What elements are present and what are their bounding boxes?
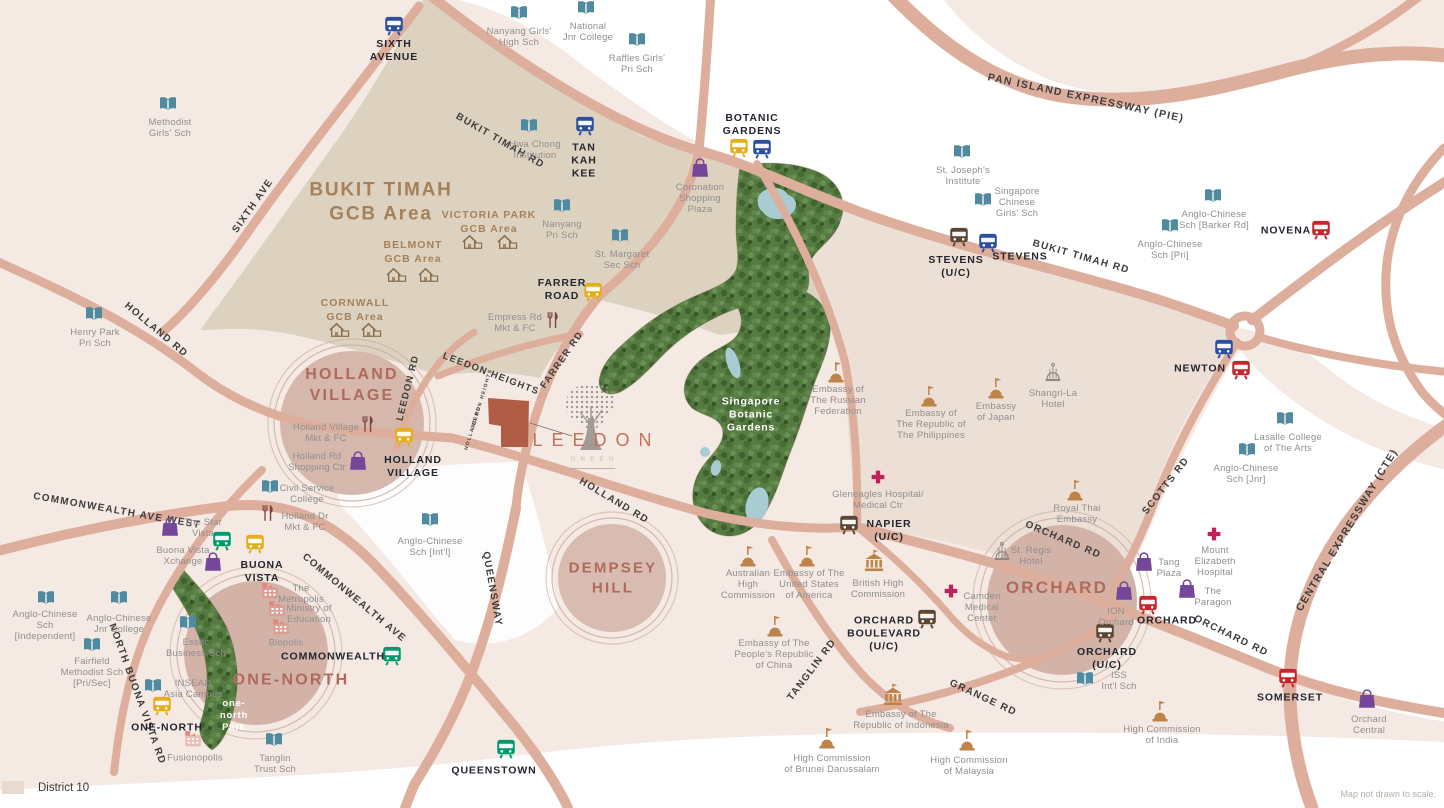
national-jnr-college-label: National Jnr College [563, 21, 613, 43]
tang-plaza-label: Tang Plaza [1157, 557, 1182, 579]
leedon-logo-sub: GREEN [523, 456, 660, 463]
ion-orchard-label: ION Orchard [1098, 606, 1134, 628]
civil-service-college-icon [260, 477, 280, 497]
henry-park-pri-sch-icon [84, 304, 104, 324]
leedon-logo: LEEDON GREEN [523, 430, 660, 469]
high-commission-of-malaysia-icon [955, 728, 979, 752]
anglo-chinese-jnr-college-icon [109, 588, 129, 608]
road-label-sixth-ave: SIXTH AVE [230, 177, 275, 235]
the-star-vista-label: The Star Vista [184, 517, 222, 539]
road-label-farrer-rd: FARRER RD [538, 329, 586, 390]
station-label-orchard: ORCHARD [1137, 614, 1197, 627]
high-commission-of-brunei-darussalam-icon [815, 726, 839, 750]
label-layer: BUKIT TIMAH RDBUKIT TIMAH RDPAN ISLAND E… [0, 0, 1444, 808]
station-label-sixth-avenue: SIXTH AVENUE [370, 38, 418, 64]
embassy-of-the-united-states-of-america-label: Embassy of The United States of America [773, 568, 844, 602]
fairfield-methodist-sch-pri-sec-icon [82, 635, 102, 655]
station-label-queenstown: QUEENSTOWN [451, 764, 536, 777]
british-high-commission-icon [862, 549, 886, 573]
embassy-of-the-russian-federation-icon [824, 360, 848, 384]
station-label-tan-kah-kee: TAN KAH KEE [571, 141, 596, 180]
shangri-la-hotel-label: Shangri-La Hotel [1029, 388, 1077, 410]
coronation-shopping-plaza-label: Coronation Shopping Plaza [676, 182, 724, 216]
station-icon-somerset-red [1278, 668, 1299, 689]
mount-elizabeth-hospital-label: Mount Elizabeth Hospital [1195, 545, 1236, 579]
biopolis-label: Biopolis [269, 637, 304, 648]
anglo-chinese-sch-pri-icon [1160, 216, 1180, 236]
leedon-logo-name: LEEDON [523, 430, 660, 451]
station-icon-stevens-u-c-brown [949, 227, 970, 248]
tanglin-trust-sch-icon [264, 730, 284, 750]
road-label-holland-rd: HOLLAND RD [577, 476, 650, 526]
gcb-area-label-victoria-park-gcb-area: VICTORIA PARK GCB Area [442, 208, 536, 236]
fairfield-methodist-sch-pri-sec-label: Fairfield Methodist Sch [Pri/Sec] [61, 656, 124, 690]
station-icon-holland-village-yellow [394, 427, 415, 448]
station-icon-tan-kah-kee-blue [575, 116, 596, 137]
raffles-girls-pri-sch-icon [627, 30, 647, 50]
biopolis-icon [270, 615, 292, 637]
leedon-logo-rule [569, 468, 615, 469]
st-margaret-sec-sch-label: St. Margaret Sec Sch [595, 249, 650, 271]
the-star-vista-icon [159, 516, 181, 538]
station-icon-newton-blue [1214, 339, 1235, 360]
hwa-chong-institution-icon [519, 116, 539, 136]
road-label-queensway: QUEENSWAY [480, 551, 504, 628]
camden-medical-center-icon [943, 583, 959, 599]
st-regis-hotel-icon [991, 541, 1013, 563]
ministry-of-education-label: Ministry of Education [286, 603, 331, 625]
henry-park-pri-sch-label: Henry Park Pri Sch [70, 327, 120, 349]
station-label-stevens-u-c: STEVENS (U/C) [928, 254, 983, 280]
gcb-house-icon-cornwall-gcb-area-0 [328, 320, 351, 343]
station-label-novena: NOVENA [1261, 224, 1311, 237]
anglo-chinese-sch-int-l-label: Anglo-Chinese Sch [Int'l] [398, 536, 463, 558]
nanyang-pri-sch-label: Nanyang Pri Sch [542, 219, 581, 241]
anglo-chinese-sch-pri-label: Anglo-Chinese Sch [Pri] [1138, 239, 1203, 261]
district-10-swatch [2, 781, 24, 794]
gcb-house-icon-belmont-gcb-area-1 [417, 265, 440, 288]
ion-orchard-icon [1113, 580, 1135, 602]
park-label-one-north-park: one- north Park [220, 698, 248, 734]
station-icon-queenstown-green [496, 739, 517, 760]
embassy-of-the-republic-of-indonesia-icon [881, 683, 905, 707]
tanglin-trust-sch-label: Tanglin Trust Sch [254, 753, 296, 775]
orchard-central-label: Orchard Central [1351, 714, 1387, 736]
royal-thai-embassy-label: Royal Thai Embassy [1053, 503, 1100, 525]
station-icon-novena-red [1311, 220, 1332, 241]
british-high-commission-label: British High Commission [851, 578, 905, 600]
area-label-dempsey-hill: DEMPSEY HILL [569, 559, 658, 598]
iss-int-l-sch-label: ISS Int'l Sch [1101, 670, 1136, 692]
map-footnote: Map not drawn to scale. [1340, 789, 1436, 799]
nanyang-girls-high-sch-icon [509, 3, 529, 23]
area-label-holland-village: HOLLAND VILLAGE [305, 365, 399, 407]
embassy-of-the-people-s-republic-of-china-icon [763, 614, 787, 638]
embassy-of-japan-icon [984, 376, 1008, 400]
embassy-of-the-russian-federation-label: Embassy of The Russian Federation [810, 384, 866, 418]
holland-rd-shopping-ctr-label: Holland Rd Shopping Ctr [288, 451, 346, 473]
embassy-of-the-republic-of-the-philippines-label: Embassy of The Republic of The Philippin… [896, 408, 966, 442]
insead-asia-campus-icon [143, 676, 163, 696]
embassy-of-the-united-states-of-america-icon [795, 544, 819, 568]
embassy-of-the-republic-of-the-philippines-icon [917, 384, 941, 408]
station-label-botanic-gardens: BOTANIC GARDENS [723, 112, 782, 138]
national-jnr-college-icon [576, 0, 596, 18]
station-icon-botanic-gardens-yellow [729, 138, 750, 159]
holland-dr-mkt-fc-label: Holland Dr Mkt & FC [282, 511, 329, 533]
gleneagles-hospital-medical-ctr-label: Gleneagles Hospital/ Medical Ctr [832, 489, 924, 511]
methodist-girls-sch-label: Methodist Girls' Sch [149, 117, 192, 139]
station-icon-orchard-red [1138, 595, 1159, 616]
camden-medical-center-label: Camden Medical Center [963, 591, 1000, 625]
station-icon-sixth-avenue-blue [384, 16, 405, 37]
road-label-pan-island-expressway-pie: PAN ISLAND EXPRESSWAY (PIE) [987, 71, 1186, 124]
essec-business-sch-icon [178, 613, 198, 633]
station-label-farrer-road: FARRER ROAD [538, 277, 587, 303]
station-label-napier-u-c: NAPIER (U/C) [866, 518, 911, 544]
tang-plaza-icon [1133, 551, 1155, 573]
station-icon-botanic-gardens-blue [752, 139, 773, 160]
station-label-somerset: SOMERSET [1257, 691, 1323, 704]
area-label-one-north: ONE-NORTH [233, 671, 350, 692]
leedon-green-location-map: BUKIT TIMAH RDBUKIT TIMAH RDPAN ISLAND E… [0, 0, 1444, 808]
holland-village-mkt-fc-label: Holland Village Mkt & FC [293, 422, 359, 444]
gleneagles-hospital-medical-ctr-icon [870, 469, 886, 485]
insead-asia-campus-label: INSEAD Asia Campus [164, 678, 223, 700]
high-commission-of-india-icon [1148, 699, 1172, 723]
royal-thai-embassy-icon [1063, 478, 1087, 502]
holland-village-mkt-fc-icon [359, 415, 378, 434]
empress-rd-mkt-fc-icon [544, 311, 563, 330]
gcb-house-icon-cornwall-gcb-area-1 [360, 320, 383, 343]
hwa-chong-institution-label: Hwa Chong Institution [509, 139, 560, 161]
anglo-chinese-sch-jnr-icon [1237, 440, 1257, 460]
fusionopolis-icon [182, 727, 204, 749]
gcb-area-label-belmont-gcb-area: BELMONT GCB Area [384, 238, 443, 266]
australian-high-commission-label: Australian High Commission [721, 568, 775, 602]
road-label-grange-rd: GRANGE RD [948, 678, 1019, 719]
road-label-scotts-rd: SCOTTS RD [1140, 455, 1191, 517]
embassy-of-the-republic-of-indonesia-label: Embassy of The Republic of Indonesia [853, 709, 949, 731]
embassy-of-the-people-s-republic-of-china-label: Embassy of The People's Republic of Chin… [734, 638, 813, 672]
methodist-girls-sch-icon [158, 94, 178, 114]
road-label-holland-rd: HOLLAND RD [463, 405, 482, 451]
station-label-holland-village: HOLLAND VILLAGE [384, 454, 442, 480]
area-label-orchard: ORCHARD [1006, 577, 1108, 599]
raffles-girls-pri-sch-label: Raffles Girls' Pri Sch [609, 53, 665, 75]
nanyang-pri-sch-icon [552, 196, 572, 216]
station-icon-newton-red [1231, 360, 1252, 381]
anglo-chinese-sch-independent-icon [36, 588, 56, 608]
high-commission-of-india-label: High Commission of India [1123, 724, 1200, 746]
anglo-chinese-sch-jnr-label: Anglo-Chinese Sch [Jnr] [1214, 463, 1279, 485]
high-commission-of-brunei-darussalam-label: High Commission of Brunei Darussalam [784, 753, 879, 775]
anglo-chinese-jnr-college-label: Anglo-Chinese Jnr College [87, 613, 152, 635]
district-legend: District 10 [2, 781, 89, 794]
embassy-of-japan-label: Embassy of Japan [976, 401, 1016, 423]
st-joseph-s-institute-label: St. Joseph's Institute [936, 165, 990, 187]
orchard-central-icon [1356, 688, 1378, 710]
gcb-house-icon-belmont-gcb-area-0 [385, 265, 408, 288]
lasalle-college-of-the-arts-icon [1275, 409, 1295, 429]
anglo-chinese-sch-int-l-icon [420, 510, 440, 530]
singapore-chinese-girls-sch-icon [973, 190, 993, 210]
iss-int-l-sch-icon [1075, 669, 1095, 689]
station-label-stevens: STEVENS [992, 250, 1047, 263]
nanyang-girls-high-sch-label: Nanyang Girls' High Sch [487, 26, 552, 48]
st-regis-hotel-label: St. Regis Hotel [1011, 545, 1051, 567]
st-margaret-sec-sch-icon [610, 226, 630, 246]
coronation-shopping-plaza-icon [689, 157, 711, 179]
essec-business-sch-label: Essec Business Sch [166, 637, 226, 659]
station-label-newton: NEWTON [1174, 362, 1226, 375]
holland-rd-shopping-ctr-icon [347, 450, 369, 472]
district-legend-label: District 10 [38, 782, 89, 794]
mount-elizabeth-hospital-icon [1206, 526, 1222, 542]
shangri-la-hotel-icon [1042, 362, 1064, 384]
anglo-chinese-sch-barker-rd-label: Anglo-Chinese Sch [Barker Rd] [1179, 209, 1249, 231]
road-label-central-expressway-cte: CENTRAL EXPRESSWAY (CTE) [1294, 447, 1401, 614]
station-icon-buona-vista-yellow [245, 534, 266, 555]
holland-dr-mkt-fc-icon [259, 504, 278, 523]
high-commission-of-malaysia-label: High Commission of Malaysia [930, 755, 1007, 777]
civil-service-college-label: Civil Service College [280, 483, 335, 505]
road-label-holland-rd: HOLLAND RD [122, 300, 190, 359]
empress-rd-mkt-fc-label: Empress Rd Mkt & FC [488, 312, 542, 334]
buona-vista-xchange-label: Buona Vista Xchange [156, 545, 209, 567]
lasalle-college-of-the-arts-label: Lasalle College of The Arts [1254, 432, 1322, 454]
the-paragon-label: The Paragon [1194, 586, 1231, 608]
gcb-area-label-bukit-timah: BUKIT TIMAH GCB Area [309, 178, 452, 226]
station-icon-napier-u-c-brown [839, 515, 860, 536]
park-label-singapore-botanic-gardens: Singapore Botanic Gardens [722, 395, 781, 434]
gcb-house-icon-victoria-park-gcb-area-1 [496, 232, 519, 255]
st-joseph-s-institute-icon [952, 142, 972, 162]
australian-high-commission-icon [736, 544, 760, 568]
station-label-orchard-boulevard-u-c: ORCHARD BOULEVARD (U/C) [847, 614, 921, 653]
gcb-house-icon-victoria-park-gcb-area-0 [461, 232, 484, 255]
road-label-orchard-rd: ORCHARD RD [1192, 613, 1270, 659]
fusionopolis-label: Fusionopolis [167, 752, 223, 763]
singapore-chinese-girls-sch-label: Singapore Chinese Girls' Sch [994, 186, 1039, 220]
anglo-chinese-sch-independent-label: Anglo-Chinese Sch [Independent] [13, 609, 78, 643]
station-label-commonwealth: COMMONWEALTH [281, 650, 385, 663]
anglo-chinese-sch-barker-rd-icon [1203, 186, 1223, 206]
